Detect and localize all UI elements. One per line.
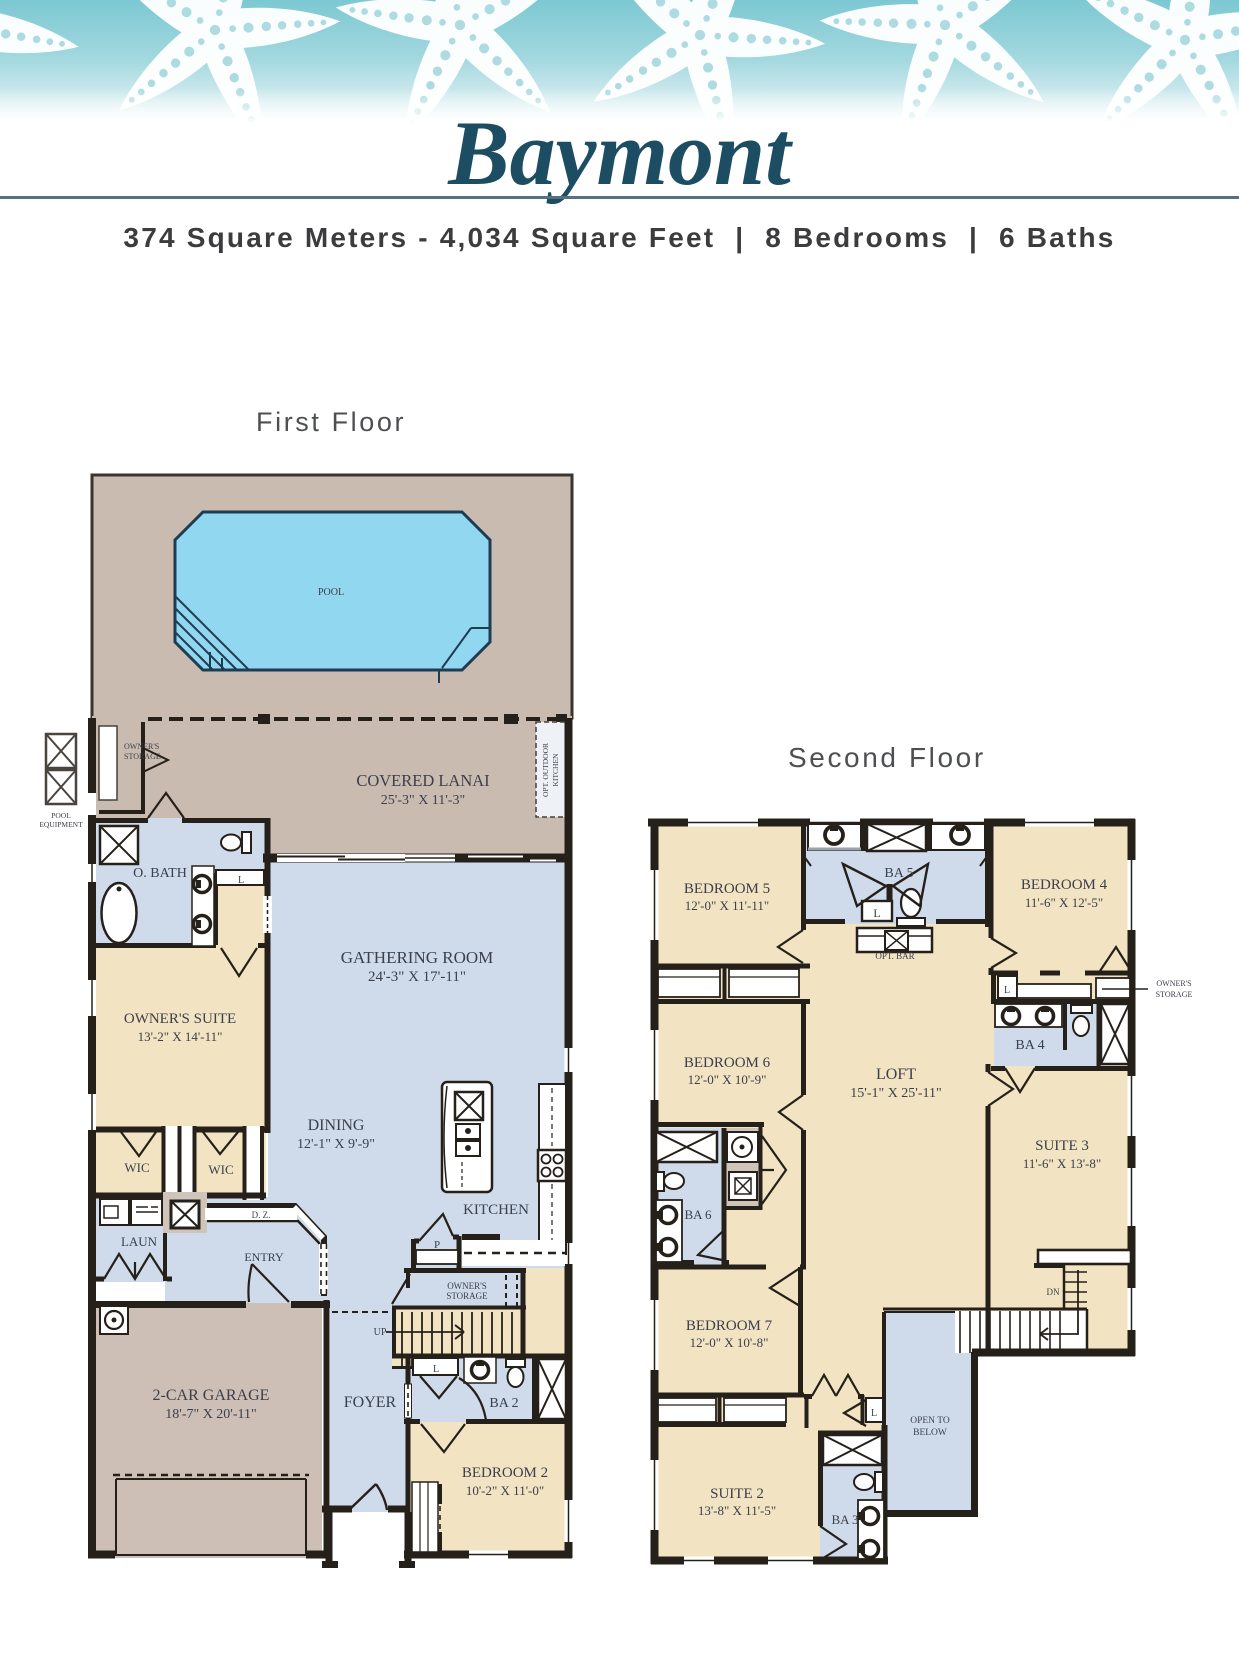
- svg-text:18'-7" X 20'-11": 18'-7" X 20'-11": [165, 1407, 256, 1422]
- svg-text:L: L: [873, 906, 880, 920]
- svg-text:P: P: [434, 1239, 440, 1251]
- svg-text:POOL: POOL: [51, 811, 71, 820]
- svg-text:SUITE 2: SUITE 2: [710, 1486, 764, 1502]
- svg-text:24'-3" X 17'-11": 24'-3" X 17'-11": [368, 969, 466, 985]
- svg-text:BEDROOM 2: BEDROOM 2: [462, 1465, 548, 1481]
- svg-text:OWNER'S: OWNER'S: [447, 1281, 487, 1291]
- svg-text:FOYER: FOYER: [344, 1394, 397, 1411]
- svg-text:OPEN TO: OPEN TO: [910, 1416, 950, 1426]
- svg-text:L: L: [871, 1408, 877, 1419]
- svg-text:DINING: DINING: [308, 1117, 365, 1134]
- svg-text:STORAGE: STORAGE: [1156, 990, 1193, 999]
- svg-text:D. Z.: D. Z.: [252, 1210, 271, 1220]
- svg-text:BEDROOM 4: BEDROOM 4: [1021, 877, 1108, 893]
- svg-text:OPT. BAR: OPT. BAR: [875, 951, 914, 961]
- svg-text:OPT. OUTDOOR: OPT. OUTDOOR: [541, 743, 550, 797]
- svg-text:O. BATH: O. BATH: [133, 866, 187, 881]
- svg-text:KITCHEN: KITCHEN: [551, 753, 560, 786]
- svg-text:OWNER'S SUITE: OWNER'S SUITE: [124, 1011, 236, 1027]
- svg-text:GATHERING ROOM: GATHERING ROOM: [341, 948, 494, 967]
- svg-text:LOFT: LOFT: [876, 1066, 916, 1083]
- svg-text:L: L: [433, 1364, 439, 1375]
- svg-text:KITCHEN: KITCHEN: [463, 1202, 529, 1218]
- svg-text:COVERED LANAI: COVERED LANAI: [356, 771, 489, 790]
- svg-text:25'-3" X 11'-3": 25'-3" X 11'-3": [381, 793, 465, 808]
- svg-text:11'-6" X 13'-8": 11'-6" X 13'-8": [1023, 1156, 1101, 1171]
- svg-text:BA 4: BA 4: [1015, 1038, 1044, 1053]
- svg-text:LAUN: LAUN: [121, 1234, 158, 1249]
- svg-text:UP: UP: [374, 1327, 387, 1338]
- svg-text:10'-2" X 11'-0": 10'-2" X 11'-0": [466, 1483, 544, 1498]
- svg-text:BA 3: BA 3: [831, 1512, 858, 1527]
- svg-text:WIC: WIC: [124, 1160, 149, 1175]
- svg-text:BA 6: BA 6: [684, 1207, 712, 1222]
- svg-text:DN: DN: [1047, 1287, 1060, 1297]
- svg-text:15'-1" X 25'-11": 15'-1" X 25'-11": [850, 1086, 941, 1101]
- svg-text:ENTRY: ENTRY: [244, 1250, 284, 1264]
- svg-text:EQUIPMENT: EQUIPMENT: [40, 820, 83, 829]
- svg-text:BELOW: BELOW: [913, 1428, 947, 1438]
- svg-text:BA 5: BA 5: [884, 866, 913, 881]
- svg-text:2-CAR GARAGE: 2-CAR GARAGE: [153, 1387, 270, 1404]
- svg-text:BA 2: BA 2: [489, 1396, 518, 1411]
- svg-text:SUITE 3: SUITE 3: [1035, 1138, 1089, 1154]
- svg-text:13'-2" X 14'-11": 13'-2" X 14'-11": [138, 1029, 223, 1044]
- svg-text:13'-8" X 11'-5": 13'-8" X 11'-5": [698, 1503, 776, 1518]
- svg-text:12'-1" X 9'-9": 12'-1" X 9'-9": [297, 1137, 375, 1152]
- svg-text:OWNER'S: OWNER'S: [124, 742, 159, 751]
- svg-text:STORAGE: STORAGE: [446, 1291, 488, 1301]
- svg-text:POOL: POOL: [318, 587, 344, 598]
- svg-text:11'-6" X 12'-5": 11'-6" X 12'-5": [1025, 895, 1103, 910]
- svg-text:L: L: [1004, 985, 1010, 996]
- svg-text:12'-0" X 10'-8": 12'-0" X 10'-8": [690, 1335, 769, 1350]
- svg-text:BEDROOM 7: BEDROOM 7: [686, 1318, 773, 1334]
- svg-text:BEDROOM 5: BEDROOM 5: [684, 881, 770, 897]
- svg-text:12'-0" X 11'-11": 12'-0" X 11'-11": [685, 898, 769, 913]
- svg-text:L: L: [238, 875, 244, 886]
- svg-text:WIC: WIC: [208, 1162, 233, 1177]
- svg-text:OWNER'S: OWNER'S: [1156, 979, 1191, 988]
- svg-text:BEDROOM 6: BEDROOM 6: [684, 1055, 771, 1071]
- svg-text:12'-0" X 10'-9": 12'-0" X 10'-9": [688, 1072, 767, 1087]
